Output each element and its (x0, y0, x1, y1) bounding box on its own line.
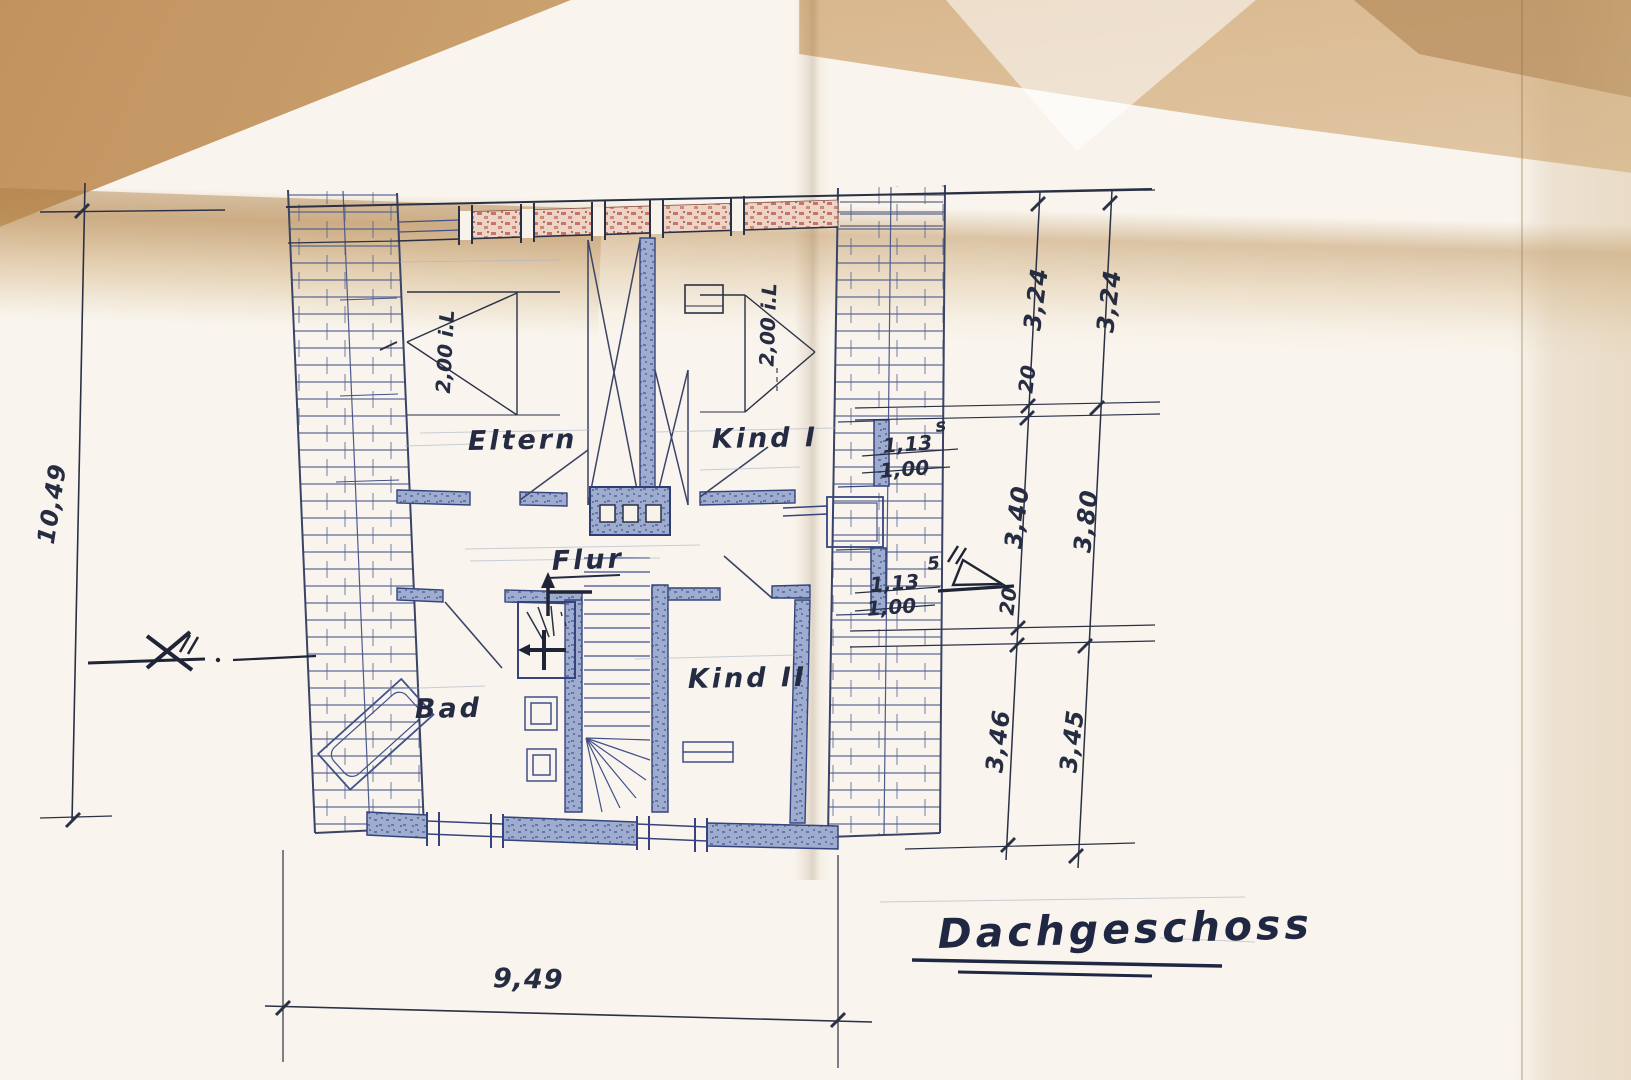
dim-right-outer-2: 3,80 (1068, 488, 1103, 554)
room-label-flur: Flur (551, 543, 624, 577)
dim-right-outer-3: 3,45 (1054, 708, 1089, 774)
chimney-block (590, 487, 670, 535)
stair-treads (584, 558, 650, 726)
chimney-shaft (640, 238, 655, 490)
bad-fixture-2 (527, 749, 556, 781)
dim-bottom-line (265, 1006, 872, 1022)
dim-right-inner-4: 20 (994, 586, 1021, 617)
win2-dim-b: 1,00 (866, 593, 917, 620)
room-label-kind2: Kind II (688, 662, 808, 695)
cross-brace-right (655, 370, 688, 505)
shower-cross-icon (518, 630, 566, 670)
dim-right-inner-2: 20 (1013, 364, 1040, 395)
dim-bottom (265, 850, 872, 1068)
door-swing-kind2 (724, 556, 772, 598)
door-swing-bad (445, 602, 502, 668)
win1-dim-a: 1,13 (882, 430, 933, 457)
slope-line-eltern (380, 292, 560, 415)
top-exterior-wall (40, 189, 1152, 245)
dim-right-outer-1: 3,24 (1091, 268, 1126, 334)
dim-left-line (72, 183, 85, 822)
clear-height-label-left: 2,00 i.L (431, 309, 459, 394)
room-label-eltern: Eltern (468, 424, 578, 457)
left-roof-hatch-band (288, 190, 424, 833)
title-underline (912, 960, 1222, 976)
dim-right-inner-3: 3,40 (999, 484, 1034, 550)
win1-dim-b: 1,00 (879, 455, 930, 482)
win2-superscript: 5 (926, 553, 941, 575)
stair-winders (586, 738, 650, 812)
bad-fixture-1 (525, 697, 557, 730)
bottom-wall-window-1 (427, 812, 503, 848)
floor-plan-drawing: 2,00 i.L 2,00 i.L Eltern Kind I (0, 0, 1631, 1080)
kind2-bench (683, 742, 733, 762)
flue-box (685, 285, 723, 313)
staircase (584, 558, 650, 812)
page-title: Dachgeschoss (937, 900, 1313, 958)
bottom-exterior-wall (367, 812, 838, 852)
room-label-kind1: Kind I (712, 422, 819, 455)
scanned-floor-plan-photo: 2,00 i.L 2,00 i.L Eltern Kind I (0, 0, 1631, 1080)
bottom-wall-window-2 (637, 816, 707, 852)
right-roof-hatch-band (828, 185, 945, 837)
section-marker-right (938, 546, 1014, 591)
clear-height-label-right: 2,00 i.L (755, 283, 782, 367)
room-label-bad: Bad (415, 693, 483, 725)
cross-brace-left (588, 240, 640, 505)
dim-left-label: 10,49 (32, 462, 72, 546)
dim-right-inner-1: 3,24 (1018, 266, 1053, 332)
section-marker-left (88, 632, 316, 670)
dim-bottom-label: 9,49 (493, 963, 564, 996)
